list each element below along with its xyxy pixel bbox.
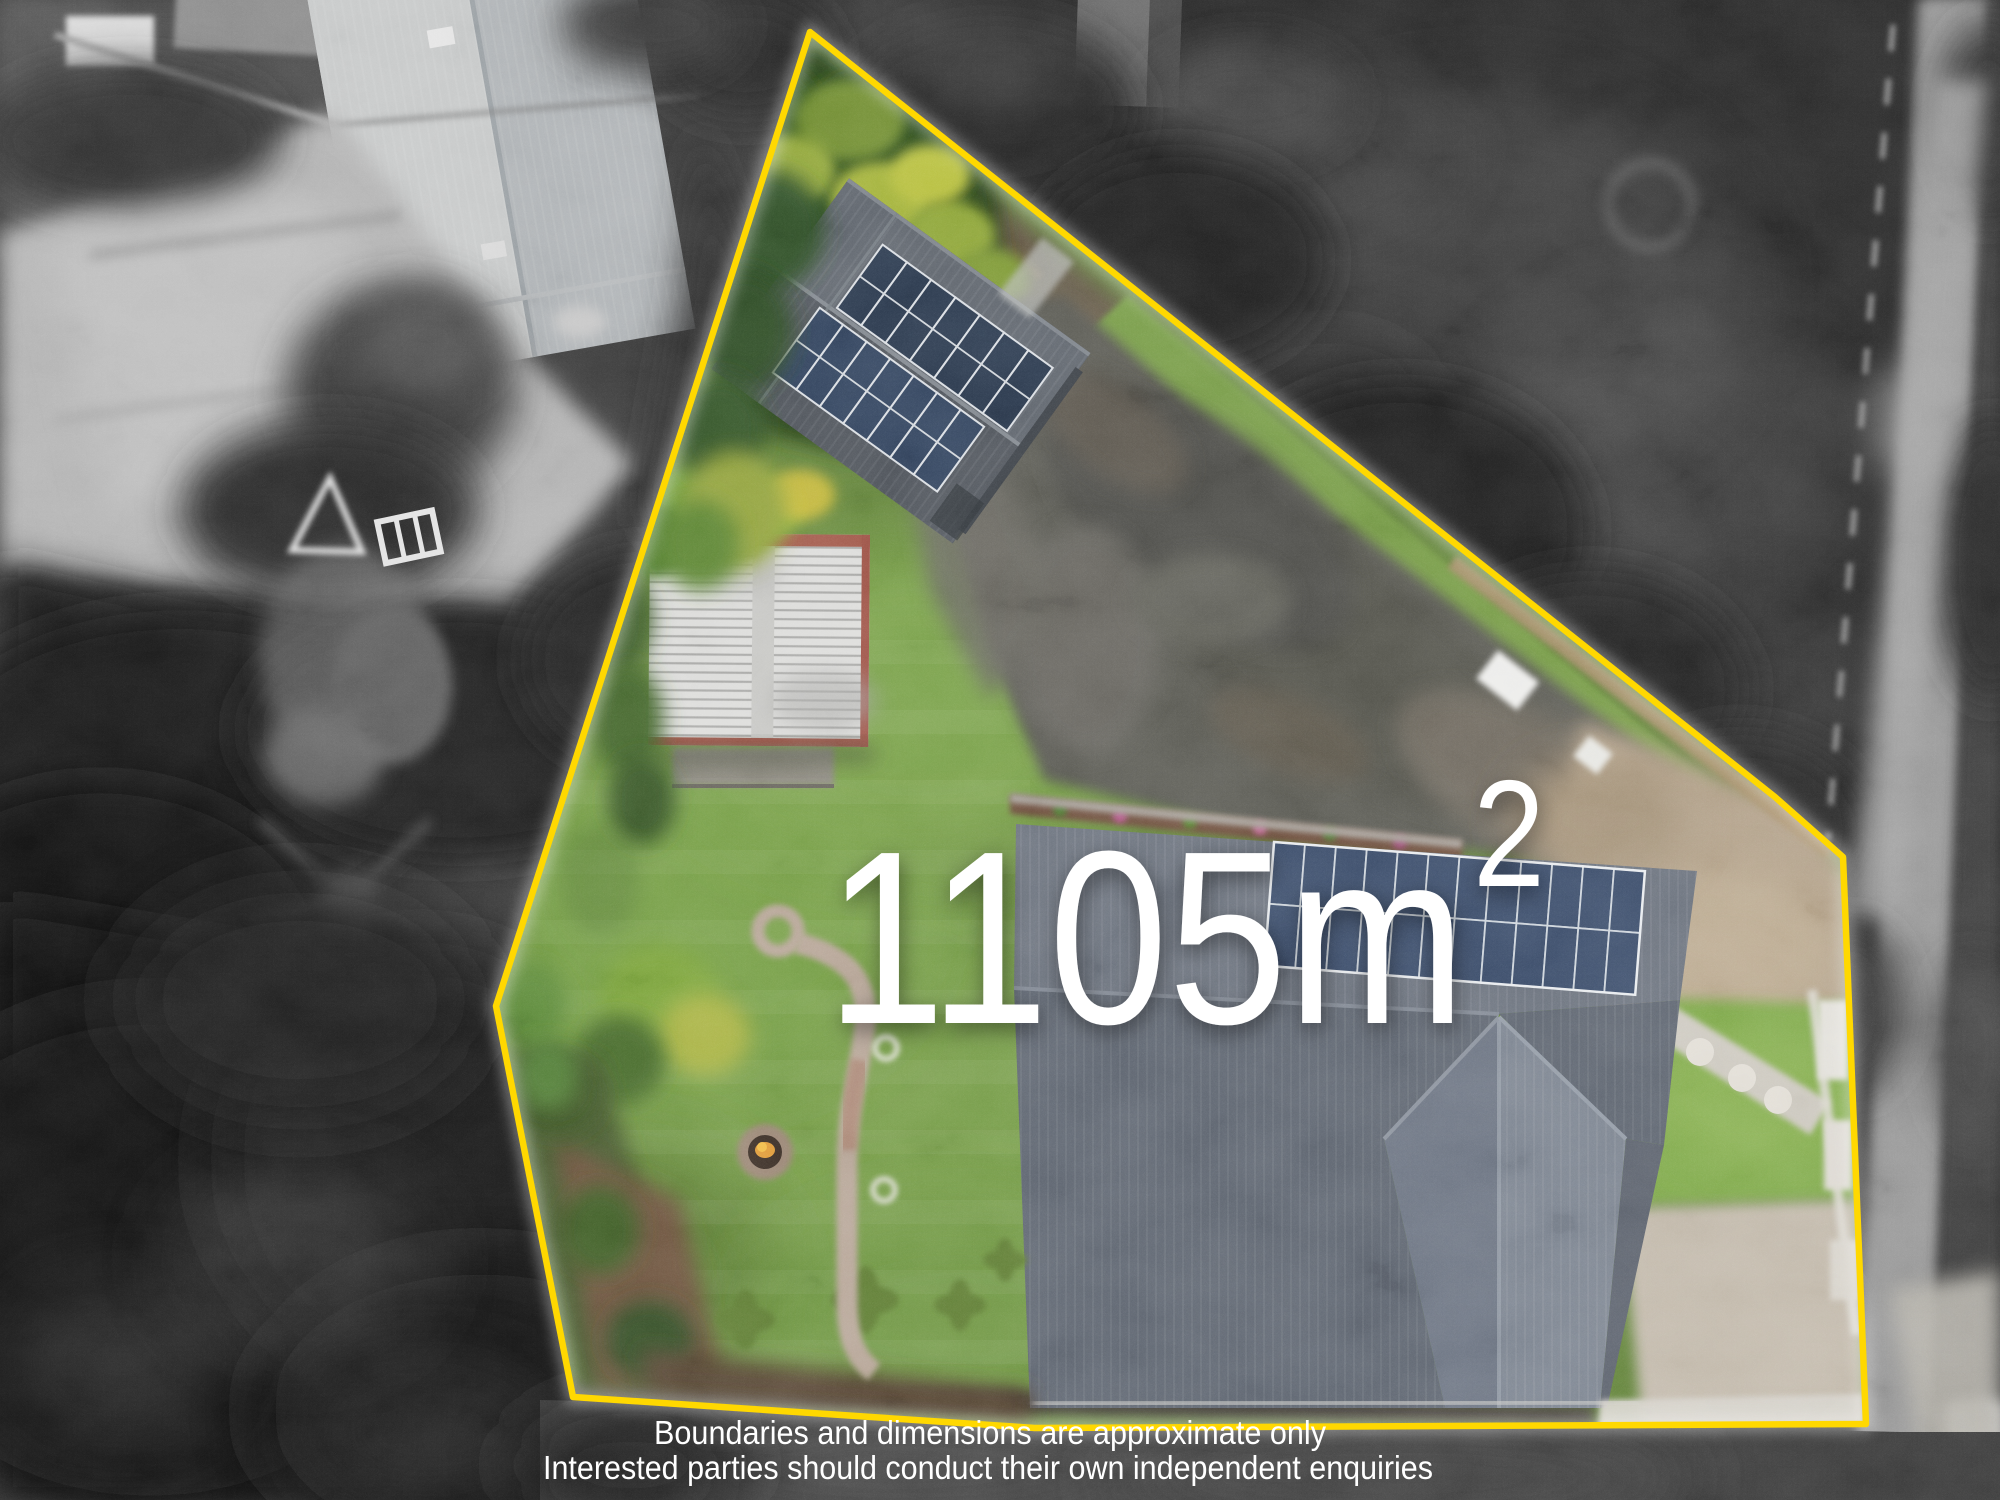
svg-text:Boundaries and dimensions are: Boundaries and dimensions are approximat… <box>654 1414 1326 1451</box>
svg-text:Interested parties should cond: Interested parties should conduct their … <box>543 1449 1433 1486</box>
svg-text:2: 2 <box>1473 749 1545 919</box>
svg-text:1105m: 1105m <box>826 800 1466 1076</box>
